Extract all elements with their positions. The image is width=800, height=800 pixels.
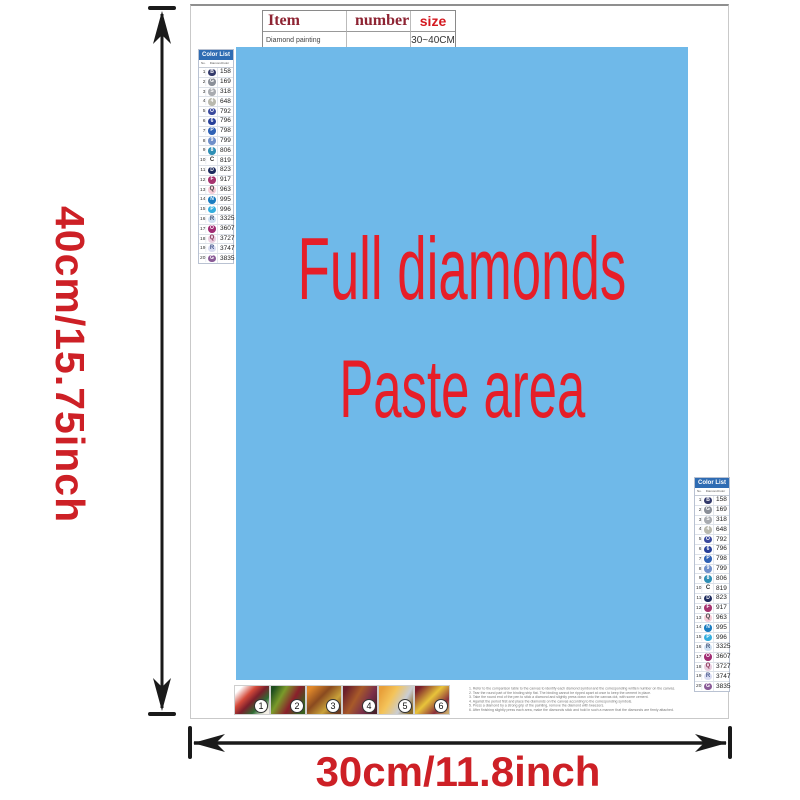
color-list-title: Color List	[199, 50, 233, 60]
color-list-row: 2 G 169	[199, 77, 233, 87]
diamond-symbol-icon: R	[704, 673, 712, 681]
color-row-number: 6	[696, 546, 702, 553]
color-row-code: 917	[714, 604, 729, 612]
width-dimension-label: 30cm/11.8inch	[258, 748, 658, 796]
color-row-code: 823	[218, 166, 233, 174]
diamond-symbol-icon: 8	[208, 147, 216, 155]
height-dimension-arrow	[144, 4, 180, 718]
color-list-left: Color List No. Diamond Color 1 B 158 2 G…	[198, 49, 234, 264]
color-list-row: 20 G 3835	[199, 253, 233, 263]
diamond-symbol-icon: C	[704, 585, 712, 593]
color-list-row: 2 G 169	[695, 505, 729, 515]
diamond-symbol-icon: 9	[704, 565, 712, 573]
color-list-row: 6 6 796	[199, 116, 233, 126]
color-row-number: 2	[200, 79, 206, 86]
color-row-number: 3	[200, 88, 206, 95]
paste-area-subtitle: Paste area	[339, 349, 585, 431]
color-row-number: 5	[200, 108, 206, 115]
color-list-row: 8 9 799	[199, 136, 233, 146]
color-list-row: 19 R 3747	[199, 243, 233, 253]
diamond-symbol-icon: Q	[704, 663, 712, 671]
item-table-product-name: Diamond painting	[263, 32, 347, 48]
color-row-number: 10	[200, 157, 206, 164]
canvas-sheet: Item number size Diamond painting 30~40C…	[190, 4, 729, 719]
color-list-row: 16 R 3325	[695, 642, 729, 652]
color-row-number: 13	[696, 614, 702, 621]
step-thumbnail: 6	[414, 685, 450, 715]
color-row-number: 6	[200, 118, 206, 125]
color-list-row: 18 Q 3727	[695, 662, 729, 672]
item-table-header-number: number	[347, 11, 411, 32]
color-row-code: 996	[714, 634, 729, 642]
color-row-number: 17	[200, 226, 206, 233]
color-row-code: 648	[218, 98, 233, 106]
color-row-code: 3747	[714, 673, 730, 681]
color-list-col-color: Color	[718, 490, 726, 494]
color-row-number: 8	[200, 137, 206, 144]
color-row-code: 169	[218, 78, 233, 86]
step-number-badge: 3	[326, 699, 340, 713]
color-list-row: 12 F 917	[695, 603, 729, 613]
diamond-symbol-icon: O	[208, 225, 216, 233]
color-row-number: 7	[200, 128, 206, 135]
color-row-number: 12	[696, 605, 702, 612]
diamond-symbol-icon: O	[704, 653, 712, 661]
color-row-code: 648	[714, 526, 729, 534]
diamond-symbol-icon: N	[208, 196, 216, 204]
color-row-number: 12	[200, 177, 206, 184]
diamond-symbol-icon: Q	[704, 614, 712, 622]
color-list-row: 14 N 995	[695, 622, 729, 632]
color-list-row: 18 Q 3727	[199, 234, 233, 244]
color-row-number: 19	[200, 245, 206, 252]
color-list-row: 14 N 995	[199, 194, 233, 204]
step-number-badge: 1	[254, 699, 268, 713]
color-row-code: 917	[218, 176, 233, 184]
color-list-row: 19 R 3747	[695, 671, 729, 681]
step-number-badge: 4	[362, 699, 376, 713]
step-thumbnail: 3	[306, 685, 342, 715]
color-list-row: 4 4 648	[695, 524, 729, 534]
instruction-step-thumbnails: 1 2 3 4 5 6	[234, 685, 450, 715]
color-list-row: 5 O 792	[695, 534, 729, 544]
color-row-code: 819	[218, 157, 233, 165]
diamond-symbol-icon: D	[704, 595, 712, 603]
color-list-columns: No. Diamond Color	[695, 488, 729, 496]
color-row-number: 8	[696, 565, 702, 572]
color-list-row: 13 Q 963	[695, 613, 729, 623]
color-row-number: 18	[200, 235, 206, 242]
color-row-number: 14	[200, 196, 206, 203]
color-row-number: 13	[200, 186, 206, 193]
color-row-number: 9	[696, 575, 702, 582]
color-list-row: 17 O 3607	[199, 224, 233, 234]
color-list-title: Color List	[695, 478, 729, 488]
color-row-code: 792	[218, 108, 233, 116]
color-list-col-diamond: Diamond	[706, 490, 712, 494]
color-list-row: 13 Q 963	[199, 185, 233, 195]
color-row-number: 18	[696, 663, 702, 670]
diamond-symbol-icon: N	[704, 624, 712, 632]
color-row-code: 3747	[218, 245, 234, 253]
diamond-symbol-icon: R	[208, 216, 216, 224]
color-list-row: 10 C 819	[199, 155, 233, 165]
diamond-symbol-icon: 4	[208, 98, 216, 106]
item-table-header-size: size	[411, 11, 455, 32]
color-list-row: 1 B 158	[199, 68, 233, 77]
color-list-row: 11 D 823	[695, 593, 729, 603]
diamond-symbol-icon: P	[704, 555, 712, 563]
color-row-number: 16	[696, 644, 702, 651]
color-row-code: 3607	[714, 653, 730, 661]
color-row-code: 963	[714, 614, 729, 622]
color-row-number: 7	[696, 556, 702, 563]
instruction-text-block: 1. Refer to the comparison table to the …	[469, 687, 704, 713]
color-list-right: Color List No. Diamond Color 1 B 158 2 G…	[694, 477, 730, 692]
color-list-row: 10 C 819	[695, 583, 729, 593]
color-row-number: 1	[696, 497, 702, 504]
color-row-code: 318	[218, 88, 233, 96]
color-list-row: 16 R 3325	[199, 214, 233, 224]
diamond-symbol-icon: P	[208, 127, 216, 135]
color-row-number: 17	[696, 654, 702, 661]
color-row-number: 2	[696, 507, 702, 514]
color-list-row: 17 O 3607	[695, 652, 729, 662]
diamond-symbol-icon: Q	[208, 186, 216, 194]
color-list-row: 8 9 799	[695, 564, 729, 574]
color-row-code: 996	[218, 206, 233, 214]
diamond-symbol-icon: 6	[704, 546, 712, 554]
color-row-code: 792	[714, 536, 729, 544]
color-row-code: 3325	[714, 643, 730, 651]
color-list-rows: 1 B 158 2 G 169 3 S 318 4	[695, 496, 729, 691]
diamond-symbol-icon: D	[208, 167, 216, 175]
diamond-symbol-icon: B	[208, 69, 216, 77]
item-table-header-item: Item	[263, 11, 347, 32]
diamond-symbol-icon: 8	[704, 575, 712, 583]
color-row-code: 995	[218, 196, 233, 204]
color-row-number: 11	[696, 595, 702, 602]
color-row-number: 4	[200, 98, 206, 105]
diamond-symbol-icon: P	[208, 206, 216, 214]
step-thumbnail: 5	[378, 685, 414, 715]
color-row-code: 3325	[218, 215, 234, 223]
diamond-symbol-icon: F	[208, 176, 216, 184]
height-dimension-label: 40cm/15.75inch	[46, 206, 93, 523]
color-row-number: 3	[696, 516, 702, 523]
color-row-code: 798	[218, 127, 233, 135]
color-row-code: 158	[218, 68, 233, 76]
color-row-code: 823	[714, 594, 729, 602]
color-list-row: 4 4 648	[199, 96, 233, 106]
color-row-code: 3835	[218, 255, 234, 263]
color-list-row: 7 P 798	[695, 554, 729, 564]
color-row-number: 5	[696, 536, 702, 543]
color-list-row: 6 6 796	[695, 544, 729, 554]
color-row-code: 158	[714, 496, 729, 504]
diamond-symbol-icon: G	[208, 255, 216, 263]
diamond-symbol-icon: Q	[208, 235, 216, 243]
color-row-code: 3727	[714, 663, 730, 671]
paste-area-title: Full diamonds	[298, 225, 627, 313]
step-thumbnail: 2	[270, 685, 306, 715]
diamond-symbol-icon: 4	[704, 526, 712, 534]
color-row-number: 14	[696, 624, 702, 631]
item-table: Item number size Diamond painting 30~40C…	[262, 10, 456, 49]
diamond-symbol-icon: B	[704, 497, 712, 505]
item-table-size-value: 30~40CM	[411, 32, 455, 48]
color-row-code: 796	[218, 117, 233, 125]
color-list-row: 3 S 318	[695, 515, 729, 525]
diamond-symbol-icon: 9	[208, 137, 216, 145]
color-row-code: 806	[218, 147, 233, 155]
color-list-col-no: No.	[697, 490, 701, 494]
diamond-symbol-icon: O	[208, 108, 216, 116]
color-row-code: 799	[218, 137, 233, 145]
color-list-columns: No. Diamond Color	[199, 60, 233, 68]
diamond-symbol-icon: G	[208, 78, 216, 86]
color-row-code: 799	[714, 565, 729, 573]
diamond-symbol-icon: R	[208, 245, 216, 253]
diamond-symbol-icon: F	[704, 604, 712, 612]
color-list-row: 12 F 917	[199, 175, 233, 185]
color-row-code: 169	[714, 506, 729, 514]
instruction-line: 6. After finishing slightly press each a…	[469, 708, 704, 712]
paste-area: Full diamonds Paste area	[236, 47, 688, 680]
step-thumbnail: 1	[234, 685, 270, 715]
color-list-col-no: No.	[201, 62, 205, 66]
diamond-symbol-icon: S	[704, 516, 712, 524]
color-row-code: 796	[714, 545, 729, 553]
color-row-code: 318	[714, 516, 729, 524]
color-row-code: 3835	[714, 683, 730, 691]
diamond-symbol-icon: P	[704, 634, 712, 642]
color-list-row: 15 P 996	[199, 204, 233, 214]
color-row-code: 995	[714, 624, 729, 632]
color-list-row: 9 8 806	[695, 573, 729, 583]
diamond-symbol-icon: C	[208, 157, 216, 165]
color-list-row: 9 8 806	[199, 145, 233, 155]
color-list-col-color: Color	[222, 62, 230, 66]
item-table-empty-cell	[347, 32, 411, 48]
color-row-number: 10	[696, 585, 702, 592]
color-list-row: 5 O 792	[199, 106, 233, 116]
color-list-row: 1 B 158	[695, 496, 729, 505]
diamond-symbol-icon: G	[704, 683, 712, 691]
step-thumbnail: 4	[342, 685, 378, 715]
color-list-row: 11 D 823	[199, 165, 233, 175]
step-number-badge: 2	[290, 699, 304, 713]
color-list-row: 15 P 996	[695, 632, 729, 642]
color-row-number: 19	[696, 673, 702, 680]
diamond-symbol-icon: 6	[208, 118, 216, 126]
color-list-row: 3 S 318	[199, 87, 233, 97]
step-number-badge: 6	[434, 699, 448, 713]
color-row-code: 798	[714, 555, 729, 563]
color-row-code: 963	[218, 186, 233, 194]
color-list-row: 7 P 798	[199, 126, 233, 136]
step-number-badge: 5	[398, 699, 412, 713]
color-row-number: 16	[200, 216, 206, 223]
color-row-code: 3727	[218, 235, 234, 243]
color-row-number: 15	[696, 634, 702, 641]
color-row-number: 15	[200, 206, 206, 213]
color-row-number: 4	[696, 526, 702, 533]
color-list-col-diamond: Diamond	[210, 62, 216, 66]
diamond-symbol-icon: G	[704, 506, 712, 514]
diamond-symbol-icon: R	[704, 644, 712, 652]
color-list-rows: 1 B 158 2 G 169 3 S 318 4	[199, 68, 233, 263]
color-row-number: 9	[200, 147, 206, 154]
color-row-code: 819	[714, 585, 729, 593]
color-row-code: 806	[714, 575, 729, 583]
color-row-number: 20	[200, 255, 206, 262]
color-row-number: 1	[200, 69, 206, 76]
color-row-number: 11	[200, 167, 206, 174]
diamond-symbol-icon: O	[704, 536, 712, 544]
diamond-symbol-icon: S	[208, 88, 216, 96]
color-row-code: 3607	[218, 225, 234, 233]
